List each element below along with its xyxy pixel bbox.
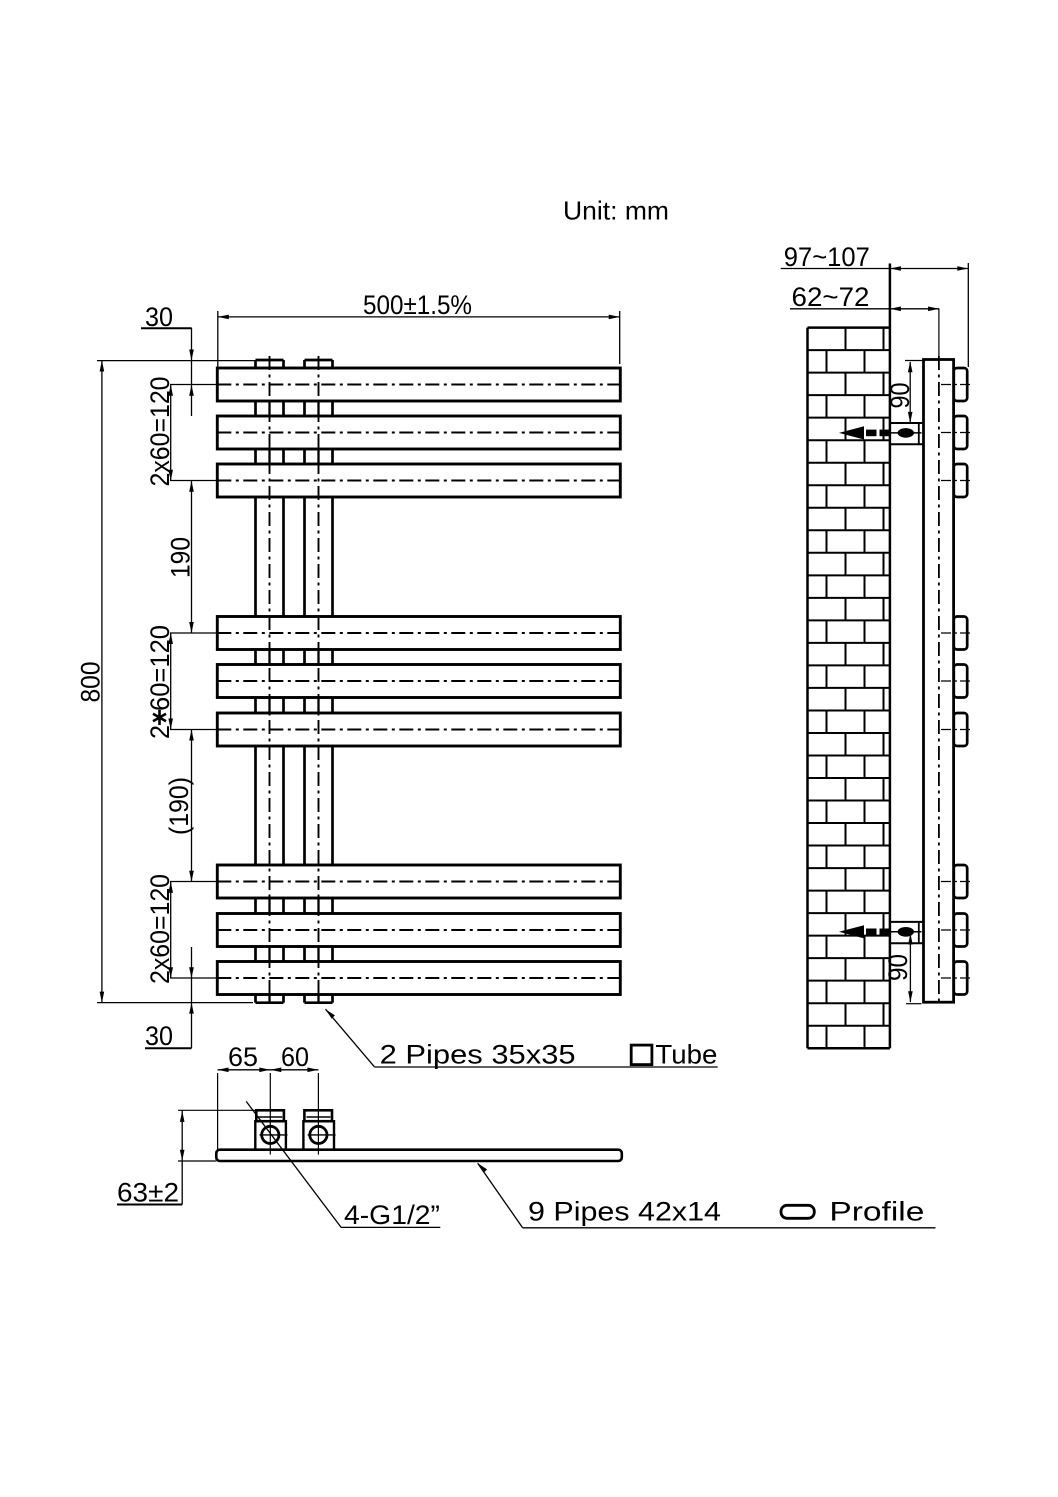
svg-text:30: 30	[145, 1021, 173, 1051]
svg-text:60=120: 60=120	[145, 625, 175, 711]
svg-text:Tube: Tube	[655, 1040, 717, 1070]
svg-text:800: 800	[76, 662, 106, 703]
svg-text:63±2: 63±2	[117, 1178, 179, 1208]
svg-text:Profile: Profile	[829, 1197, 924, 1227]
svg-text:30: 30	[145, 302, 173, 332]
svg-text:2x60=120: 2x60=120	[145, 874, 175, 984]
svg-text:4-G1/2”: 4-G1/2”	[344, 1200, 440, 1230]
svg-text:62~72: 62~72	[792, 282, 870, 312]
svg-text:190: 190	[166, 537, 196, 578]
svg-text:2x60=120: 2x60=120	[145, 377, 175, 487]
svg-text:97~107: 97~107	[784, 242, 870, 272]
svg-text:60: 60	[281, 1042, 309, 1072]
svg-text:2: 2	[145, 725, 175, 739]
svg-text:2 Pipes 35x35: 2 Pipes 35x35	[380, 1040, 576, 1070]
svg-text:65: 65	[228, 1042, 258, 1072]
svg-text:9 Pipes 42x14: 9 Pipes 42x14	[528, 1197, 721, 1227]
svg-text:(190): (190)	[164, 777, 194, 835]
svg-text:90: 90	[885, 383, 915, 409]
svg-text:Unit: mm: Unit: mm	[563, 196, 669, 226]
svg-text:500±1.5%: 500±1.5%	[363, 290, 472, 320]
svg-text:90: 90	[883, 954, 913, 981]
